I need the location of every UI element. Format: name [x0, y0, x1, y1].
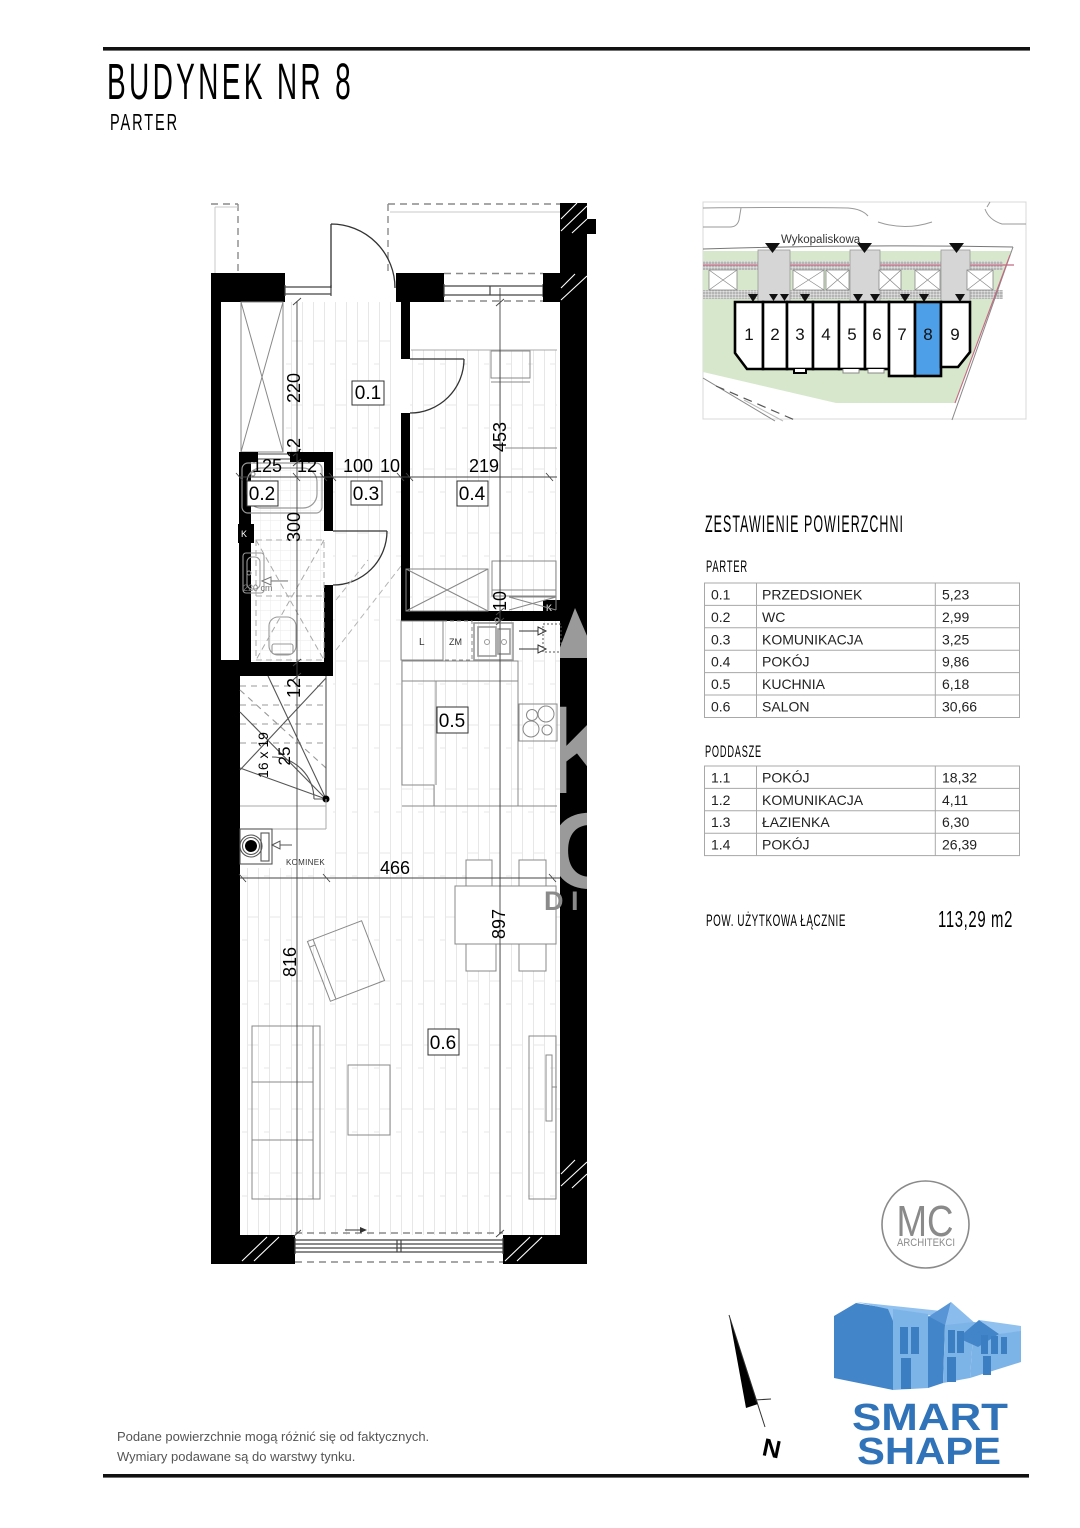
svg-text:0.4: 0.4	[459, 484, 486, 505]
svg-text:453: 453	[490, 422, 510, 452]
svg-text:466: 466	[380, 858, 410, 878]
svg-text:4: 4	[821, 325, 830, 344]
svg-text:2,99: 2,99	[942, 609, 969, 625]
svg-text:WC: WC	[762, 609, 785, 625]
svg-text:SHAPE: SHAPE	[857, 1431, 1001, 1473]
svg-text:220: 220	[284, 373, 304, 403]
svg-text:ZM: ZM	[449, 637, 462, 647]
svg-text:0.5: 0.5	[711, 676, 731, 692]
svg-text:6: 6	[872, 325, 881, 344]
svg-text:10: 10	[380, 456, 400, 476]
svg-text:POKÓJ: POKÓJ	[762, 769, 809, 785]
svg-text:0.4: 0.4	[711, 654, 731, 670]
svg-text:16 x 19: 16 x 19	[255, 732, 271, 778]
svg-text:BUDYNEK NR 8: BUDYNEK NR 8	[107, 53, 354, 110]
svg-text:Podane powierzchnie mogą różni: Podane powierzchnie mogą różnić się od f…	[117, 1429, 429, 1444]
svg-text:3,25: 3,25	[942, 631, 969, 647]
svg-text:100: 100	[343, 456, 373, 476]
svg-text:9,86: 9,86	[942, 654, 969, 670]
svg-text:K: K	[241, 529, 247, 539]
svg-text:Wymiary podawane są do warstwy: Wymiary podawane są do warstwy tynku.	[117, 1449, 355, 1464]
svg-text:Wykopaliskowa: Wykopaliskowa	[781, 234, 861, 246]
svg-text:300: 300	[284, 512, 304, 542]
svg-text:219: 219	[469, 456, 499, 476]
svg-text:POKÓJ: POKÓJ	[762, 837, 809, 853]
svg-text:2: 2	[770, 325, 779, 344]
svg-text:SALON: SALON	[762, 699, 809, 715]
svg-text:5: 5	[847, 325, 856, 344]
svg-text:6,30: 6,30	[942, 814, 969, 830]
svg-text:5,23: 5,23	[942, 587, 969, 603]
svg-text:PARTER: PARTER	[110, 109, 179, 135]
svg-text:POW. UŻYTKOWA ŁĄCZNIE: POW. UŻYTKOWA ŁĄCZNIE	[706, 911, 846, 930]
svg-text:30,66: 30,66	[942, 699, 977, 715]
svg-text:POKÓJ: POKÓJ	[762, 654, 809, 670]
svg-text:12: 12	[284, 438, 304, 458]
svg-text:PARTER: PARTER	[706, 557, 748, 576]
svg-text:12: 12	[284, 678, 304, 698]
svg-text:KUCHNIA: KUCHNIA	[762, 676, 826, 692]
svg-text:L: L	[419, 637, 425, 648]
svg-text:4,11: 4,11	[942, 792, 968, 808]
svg-text:0.5: 0.5	[439, 711, 465, 732]
svg-text:10: 10	[490, 591, 510, 611]
svg-text:D I: D I	[544, 886, 579, 916]
svg-text:KOMUNIKACJA: KOMUNIKACJA	[762, 792, 864, 808]
svg-text:0.6: 0.6	[711, 699, 731, 715]
svg-text:12: 12	[297, 456, 317, 476]
svg-text:897: 897	[489, 909, 509, 939]
svg-text:26,39: 26,39	[942, 837, 977, 853]
svg-text:0.6: 0.6	[430, 1033, 456, 1054]
svg-text:0.1: 0.1	[355, 383, 381, 404]
svg-text:125: 125	[252, 456, 282, 476]
svg-text:6,18: 6,18	[942, 676, 969, 692]
svg-text:0.3: 0.3	[353, 484, 379, 505]
svg-text:18,32: 18,32	[942, 769, 977, 785]
svg-text:0.3: 0.3	[711, 631, 731, 647]
svg-text:1.1: 1.1	[711, 769, 731, 785]
svg-text:0.1: 0.1	[711, 587, 731, 603]
svg-text:KOMINEK: KOMINEK	[286, 858, 325, 867]
svg-text:7: 7	[897, 325, 906, 344]
svg-text:1.4: 1.4	[711, 837, 731, 853]
svg-text:113,29 m2: 113,29 m2	[938, 906, 1013, 932]
svg-text:1.3: 1.3	[711, 814, 731, 830]
svg-text:ARCHITEKCI: ARCHITEKCI	[897, 1237, 955, 1249]
svg-text:8: 8	[923, 325, 932, 344]
svg-text:0.2: 0.2	[249, 484, 275, 505]
svg-text:25: 25	[275, 747, 294, 766]
svg-text:ŁAZIENKA: ŁAZIENKA	[762, 814, 830, 830]
svg-text:1.2: 1.2	[711, 792, 731, 808]
svg-text:3: 3	[795, 325, 804, 344]
svg-text:PODDASZE: PODDASZE	[705, 742, 762, 761]
svg-text:PRZEDSIONEK: PRZEDSIONEK	[762, 587, 863, 603]
svg-text:1: 1	[744, 325, 753, 344]
svg-text:0.2: 0.2	[711, 609, 731, 625]
svg-text:KOMUNIKACJA: KOMUNIKACJA	[762, 631, 864, 647]
svg-text:220 cm: 220 cm	[243, 583, 273, 593]
svg-text:816: 816	[280, 947, 300, 977]
svg-text:9: 9	[950, 325, 959, 344]
svg-text:N: N	[760, 1433, 783, 1464]
svg-text:ZESTAWIENIE POWIERZCHNI: ZESTAWIENIE POWIERZCHNI	[705, 511, 904, 538]
